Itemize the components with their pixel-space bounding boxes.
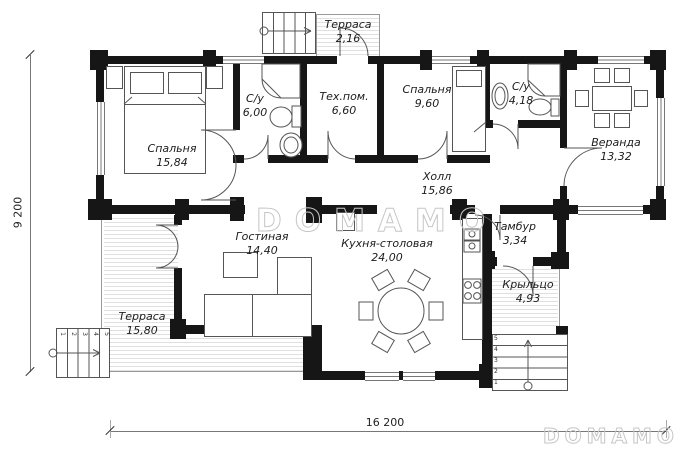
chair xyxy=(359,302,373,320)
wall xyxy=(268,155,328,163)
room-label-living: Гостиная 14,40 xyxy=(220,230,304,258)
wall xyxy=(518,120,567,128)
room-name: Спальня xyxy=(403,83,452,96)
room-name: Крыльцо xyxy=(502,278,553,291)
room-area: 9,60 xyxy=(415,97,440,110)
room-area: 6,60 xyxy=(332,104,357,117)
room-label-bedroom2: Спальня 9,60 xyxy=(385,83,469,111)
wall xyxy=(233,155,244,163)
window xyxy=(223,56,264,64)
room-area: 24,00 xyxy=(371,251,403,264)
room-name: Тамбур xyxy=(494,220,536,233)
room-name: Кухня-столовая xyxy=(341,237,432,250)
sofa-seam xyxy=(252,294,253,337)
sofa-section xyxy=(277,257,312,295)
room-label-tech: Тех.пом. 6,60 xyxy=(302,90,386,118)
blanket-line xyxy=(124,104,206,105)
log-joint xyxy=(650,50,666,70)
round-table xyxy=(378,288,424,334)
chair xyxy=(372,269,395,290)
room-name: Тех.пом. xyxy=(319,90,368,103)
room-label-hall: Холл 15,86 xyxy=(397,170,477,198)
chair xyxy=(429,302,443,320)
pillow xyxy=(168,72,202,94)
flue-block xyxy=(336,212,355,231)
room-area: 3,34 xyxy=(503,234,528,247)
log-joint xyxy=(175,199,189,220)
porch-railing-right xyxy=(559,266,560,328)
room-area: 4,18 xyxy=(509,94,534,107)
chair xyxy=(372,331,395,352)
toilet-tank xyxy=(551,99,559,116)
step-number: 5 xyxy=(103,332,109,336)
window xyxy=(365,372,399,381)
step-number: 3 xyxy=(494,358,498,364)
wall xyxy=(95,205,245,214)
kitchen-counter xyxy=(462,218,483,340)
log-joint xyxy=(420,50,432,70)
sink-bowl xyxy=(284,137,298,153)
room-name: Веранда xyxy=(591,136,641,149)
room-area: 6,00 xyxy=(243,106,268,119)
sofa xyxy=(204,294,312,337)
room-label-bath2: С/у 4,18 xyxy=(495,80,547,108)
log-joint xyxy=(306,197,322,223)
window xyxy=(578,206,643,215)
log-joint xyxy=(452,199,467,220)
step-number: 1 xyxy=(59,332,65,336)
step-number: 2 xyxy=(70,332,76,336)
room-name: Холл xyxy=(423,170,451,183)
chair xyxy=(408,331,431,352)
stair-top xyxy=(262,12,316,54)
window xyxy=(657,98,665,186)
porch-steps xyxy=(492,334,568,391)
room-name: Терраса xyxy=(325,18,372,31)
step-number: 1 xyxy=(494,380,498,386)
room-label-porch: Крыльцо 4,93 xyxy=(498,278,558,306)
room-area: 15,80 xyxy=(126,324,158,337)
chair xyxy=(594,68,610,83)
wall xyxy=(355,155,418,163)
window xyxy=(430,56,470,64)
room-label-terrace-left: Терраса 15,80 xyxy=(102,310,182,338)
chair xyxy=(614,113,630,128)
step-number: 2 xyxy=(494,369,498,375)
room-label-kitchen: Кухня-столовая 24,00 xyxy=(327,237,447,265)
terrace-left-deck-horizontal xyxy=(178,335,303,372)
wall xyxy=(447,155,490,163)
wall xyxy=(470,56,598,64)
door-arc xyxy=(328,131,355,159)
chair xyxy=(575,90,589,107)
step-number: 3 xyxy=(81,332,87,336)
terrace-left-deck-vertical xyxy=(104,215,178,372)
room-label-veranda: Веранда 13,32 xyxy=(576,136,656,164)
nightstand xyxy=(106,66,123,89)
room-area: 14,40 xyxy=(246,244,278,257)
terrace-railing-bottom xyxy=(104,371,303,372)
log-joint xyxy=(551,252,569,269)
sink-icon xyxy=(280,133,302,157)
log-joint xyxy=(479,364,493,388)
dimension-line-vertical xyxy=(30,55,31,372)
chair xyxy=(614,68,630,83)
dimension-value-width: 16 200 xyxy=(350,416,420,429)
room-name: Спальня xyxy=(148,142,197,155)
door-arc xyxy=(418,131,447,159)
door-arc xyxy=(493,124,518,149)
room-area: 2,16 xyxy=(336,32,361,45)
chair xyxy=(594,113,610,128)
door-arc xyxy=(244,135,268,159)
room-name: С/у xyxy=(512,80,530,93)
log-joint xyxy=(564,50,577,70)
room-label-bedroom1: Спальня 15,84 xyxy=(130,142,214,170)
wall xyxy=(264,56,337,64)
window xyxy=(97,102,105,175)
chair xyxy=(408,269,431,290)
room-label-tambour: Тамбур 3,34 xyxy=(489,220,541,248)
room-name: Терраса xyxy=(119,310,166,323)
door-arc xyxy=(201,165,236,200)
nightstand xyxy=(206,66,223,89)
dimension-line-horizontal xyxy=(110,431,666,432)
room-area: 4,93 xyxy=(516,292,541,305)
room-name: Гостиная xyxy=(235,230,288,243)
wall xyxy=(560,64,567,148)
step-number: 5 xyxy=(494,336,498,342)
room-area: 15,86 xyxy=(421,184,453,197)
pillow xyxy=(130,72,164,94)
room-label-terrace-top: Терраса 2,16 xyxy=(318,18,378,46)
room-name: С/у xyxy=(246,92,264,105)
watermark-corner: DOMAMO xyxy=(543,424,679,448)
dining-table xyxy=(592,86,632,111)
room-area: 13,32 xyxy=(600,150,632,163)
step-number: 4 xyxy=(92,332,98,336)
step-number: 4 xyxy=(494,347,498,353)
room-label-bath1: С/у 6,00 xyxy=(230,92,280,120)
log-joint xyxy=(88,199,112,220)
dimension-value-height: 9 200 xyxy=(12,183,25,243)
chair xyxy=(634,90,648,107)
log-joint xyxy=(650,199,666,220)
log-joint xyxy=(230,197,244,221)
room-area: 15,84 xyxy=(156,156,188,169)
log-joint xyxy=(553,199,569,220)
floor-plan: Терраса 2,16 Спальня 15,84 С/у 6,00 Тех.… xyxy=(0,0,700,454)
window xyxy=(403,372,435,381)
window xyxy=(598,56,644,64)
